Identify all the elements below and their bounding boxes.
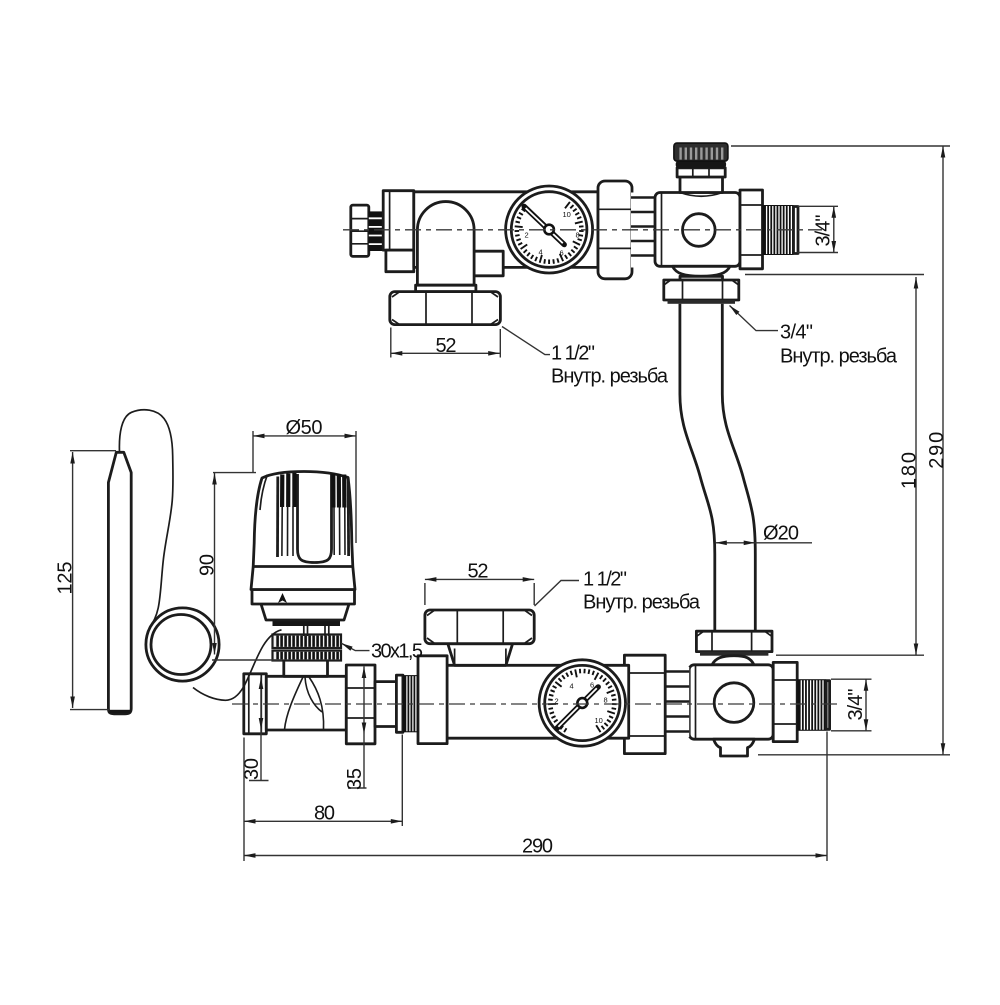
svg-text:4: 4 xyxy=(570,682,574,691)
svg-text:2: 2 xyxy=(525,231,529,240)
svg-text:180: 180 xyxy=(899,452,921,489)
svg-text:10: 10 xyxy=(595,716,603,725)
svg-text:8: 8 xyxy=(576,231,580,240)
svg-text:3/4": 3/4" xyxy=(845,689,867,721)
svg-text:Внутр. резьба: Внутр. резьба xyxy=(780,346,898,368)
svg-text:35: 35 xyxy=(344,768,366,790)
svg-text:290: 290 xyxy=(522,836,553,858)
svg-text:Ø50: Ø50 xyxy=(286,417,323,439)
svg-text:Ø20: Ø20 xyxy=(763,523,799,545)
svg-text:3/4": 3/4" xyxy=(780,322,813,344)
svg-text:52: 52 xyxy=(436,335,457,357)
svg-text:Внутр. резьба: Внутр. резьба xyxy=(583,592,701,614)
svg-text:3/4": 3/4" xyxy=(813,215,835,247)
svg-text:6: 6 xyxy=(560,249,564,258)
svg-text:1 1/2": 1 1/2" xyxy=(583,569,627,591)
svg-text:52: 52 xyxy=(468,561,489,583)
svg-text:8: 8 xyxy=(604,696,608,705)
svg-text:80: 80 xyxy=(314,803,335,825)
svg-text:1 1/2": 1 1/2" xyxy=(551,343,595,365)
svg-text:4: 4 xyxy=(539,248,543,257)
svg-text:10: 10 xyxy=(563,210,571,219)
svg-text:125: 125 xyxy=(55,562,77,595)
svg-text:90: 90 xyxy=(197,554,219,576)
svg-text:30x1,5: 30x1,5 xyxy=(371,641,423,663)
svg-text:Внутр. резьба: Внутр. резьба xyxy=(551,366,669,388)
svg-text:290: 290 xyxy=(926,432,948,469)
